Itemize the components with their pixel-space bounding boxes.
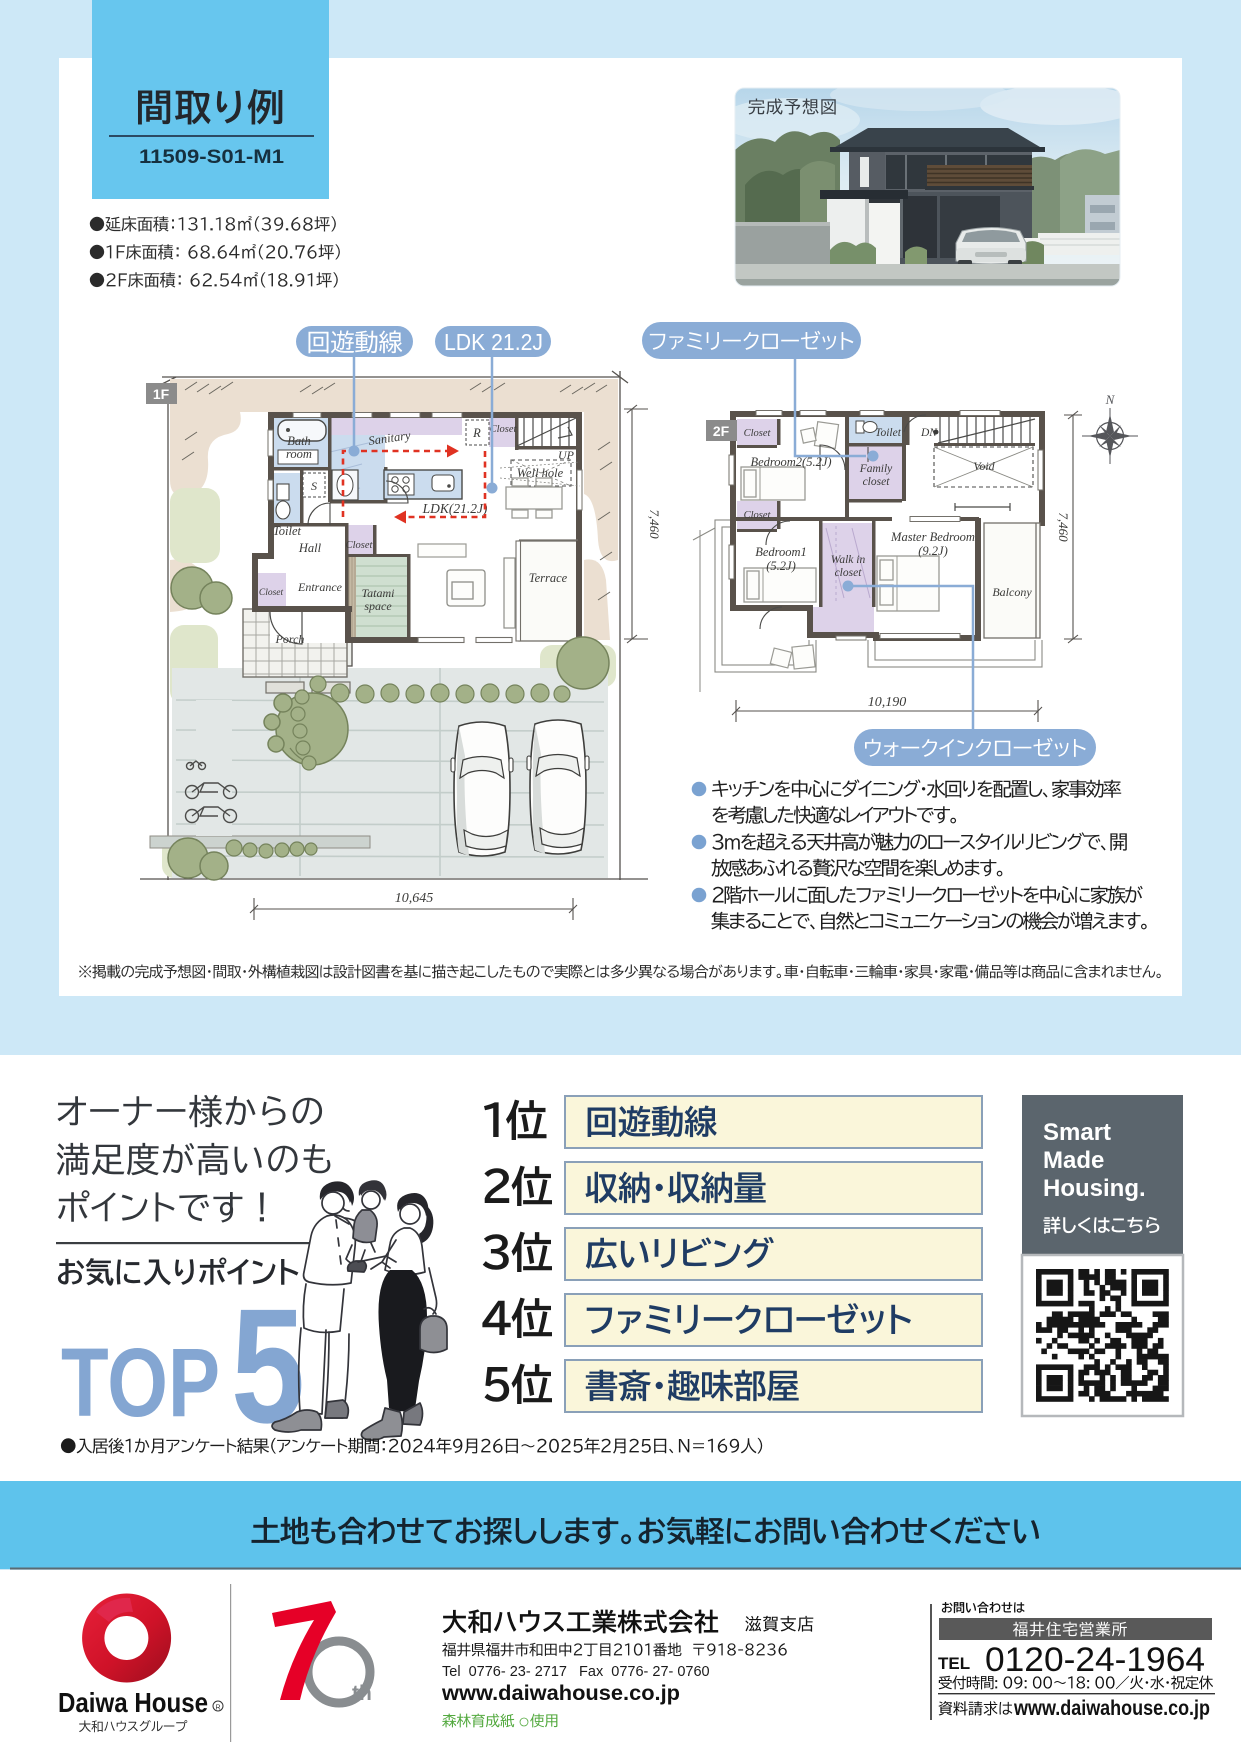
svg-text:Walk in: Walk in [831,554,866,566]
svg-text:Hall: Hall [298,541,322,555]
svg-text:LDK 21.2J: LDK 21.2J [444,329,543,355]
svg-text:www.daiwahouse.co.jp: www.daiwahouse.co.jp [441,1682,680,1705]
svg-text:10,645: 10,645 [395,891,434,906]
svg-text:Terrace: Terrace [529,571,568,585]
svg-text:Well hole: Well hole [517,466,564,480]
svg-text:0120-24-1964: 0120-24-1964 [985,1641,1205,1679]
svg-text:www.daiwahouse.co.jp: www.daiwahouse.co.jp [1013,1697,1210,1720]
svg-text:Balcony: Balcony [992,585,1032,599]
svg-text:Toilet: Toilet [273,524,302,538]
svg-text:Porch: Porch [275,632,305,646]
svg-text:R: R [215,1705,220,1712]
svg-text:(9.2J): (9.2J) [918,544,948,558]
svg-text:2F: 2F [713,423,730,439]
svg-text:10,190: 10,190 [868,695,907,710]
svg-text:11509-S01-M1: 11509-S01-M1 [139,147,284,168]
svg-text:7,460: 7,460 [647,509,662,539]
svg-text:Closet: Closet [490,424,518,435]
svg-text:Smart: Smart [1043,1119,1111,1146]
svg-text:closet: closet [863,476,891,488]
svg-text:space: space [364,599,392,613]
svg-text:Entrance: Entrance [297,580,343,594]
svg-text:Tel 0776- 23- 2717 Fax 077: Tel 0776- 23- 2717 Fax 0776- 27- 0760 [442,1664,710,1680]
svg-text:Bedroom1: Bedroom1 [755,545,807,559]
svg-text:Closet: Closet [744,510,772,521]
svg-text:LDK(21.2J): LDK(21.2J) [422,501,488,516]
svg-text:TOP: TOP [61,1328,220,1437]
svg-text:N: N [1105,392,1116,407]
svg-text:Master Bedroom: Master Bedroom [890,530,975,544]
svg-text:Closet: Closet [744,428,772,439]
svg-text:Made: Made [1043,1147,1104,1174]
svg-text:Tatami: Tatami [362,586,395,600]
svg-text:(5.2J): (5.2J) [766,559,796,573]
svg-text:room: room [286,447,312,461]
svg-text:R: R [472,426,481,440]
svg-text:Bath: Bath [287,434,311,448]
svg-text:1F: 1F [153,386,170,402]
svg-text:Closet: Closet [346,540,374,551]
svg-text:closet: closet [835,567,863,579]
svg-text:Family: Family [859,463,893,475]
svg-text:S: S [311,479,317,493]
svg-text:7,460: 7,460 [1056,512,1071,542]
svg-text:Void: Void [973,459,995,473]
svg-text:Closet: Closet [259,588,284,598]
svg-text:Housing.: Housing. [1043,1175,1146,1202]
svg-text:TEL: TEL [938,1654,970,1673]
svg-text:th: th [352,1682,372,1705]
svg-text:Toilet: Toilet [875,427,902,439]
svg-text:Daiwa House: Daiwa House [58,1687,208,1718]
